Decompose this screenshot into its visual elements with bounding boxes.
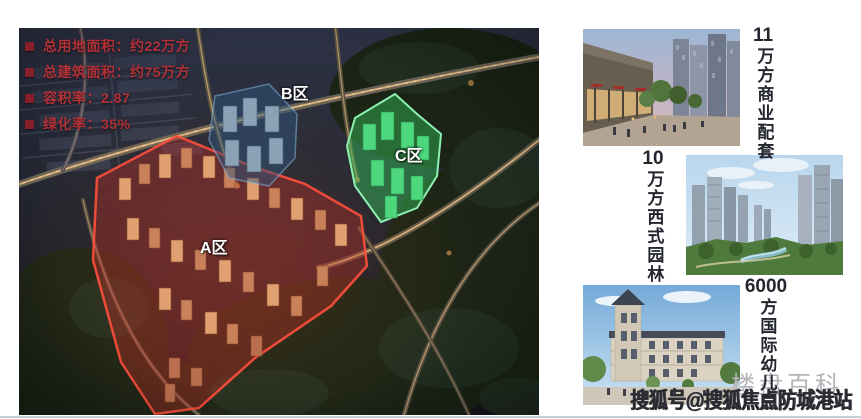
- page: 总用地面积：约22万方 总建筑面积：约75万方 容积率：2.87 绿化率：35%…: [0, 0, 861, 419]
- label-text: 万方商业配套: [754, 47, 773, 161]
- commercial-street-image: [583, 29, 740, 146]
- watermark-sohu: 搜狐号@搜狐焦点防城港站: [630, 383, 852, 415]
- label-western-garden: 10 万方西式园林: [639, 149, 667, 284]
- masterplan-map: 总用地面积：约22万方 总建筑面积：约75万方 容积率：2.87 绿化率：35%…: [19, 28, 539, 415]
- bullet-square-icon: [25, 42, 34, 51]
- bottom-divider: [0, 416, 861, 418]
- stat-row-building-area: 总建筑面积：约75万方: [25, 64, 190, 80]
- western-garden-image: [686, 155, 843, 275]
- stat-text-greening-rate: 绿化率：35%: [43, 114, 131, 134]
- zone-label-a: A区: [200, 234, 228, 258]
- bullet-square-icon: [25, 120, 34, 129]
- stats-panel: 总用地面积：约22万方 总建筑面积：约75万方 容积率：2.87 绿化率：35%: [25, 38, 190, 142]
- label-commercial-supporting: 11 万方商业配套: [749, 26, 777, 161]
- label-text: 万方西式园林: [644, 170, 663, 284]
- zone-label-b: B区: [281, 80, 309, 104]
- stat-text-building-area: 总建筑面积：约75万方: [43, 62, 190, 82]
- bullet-square-icon: [25, 94, 34, 103]
- bullet-square-icon: [25, 68, 34, 77]
- stat-row-land-area: 总用地面积：约22万方: [25, 38, 190, 54]
- zone-label-c: C区: [395, 142, 423, 166]
- stat-row-greening-rate: 绿化率：35%: [25, 116, 190, 132]
- stat-text-plot-ratio: 容积率：2.87: [43, 88, 130, 108]
- label-number: 11: [753, 26, 773, 46]
- label-number: 10: [642, 149, 663, 169]
- stat-row-plot-ratio: 容积率：2.87: [25, 90, 190, 106]
- label-number: 6000: [745, 277, 787, 297]
- stat-text-land-area: 总用地面积：约22万方: [43, 36, 190, 56]
